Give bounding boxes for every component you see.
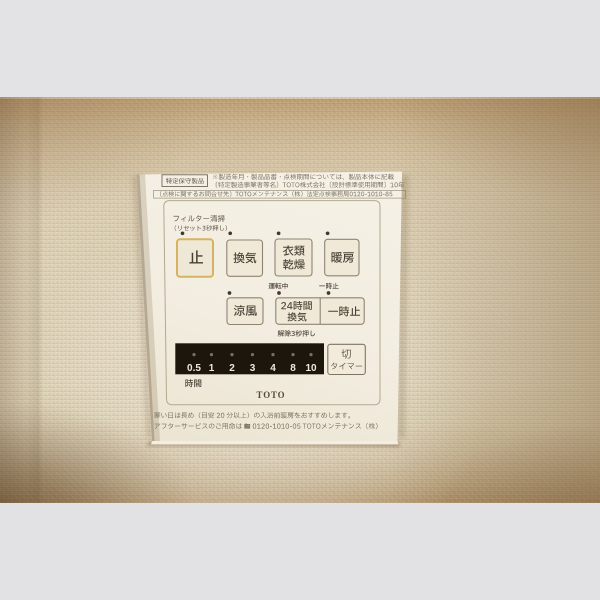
svg-text:TOTO: TOTO (257, 390, 286, 400)
svg-text:2: 2 (229, 363, 235, 374)
svg-text:8: 8 (290, 363, 296, 374)
svg-text:1: 1 (209, 363, 215, 374)
svg-text:3: 3 (250, 363, 256, 374)
svg-text:4: 4 (270, 363, 276, 374)
svg-text:10: 10 (305, 363, 317, 374)
svg-text:0.5: 0.5 (187, 363, 201, 374)
